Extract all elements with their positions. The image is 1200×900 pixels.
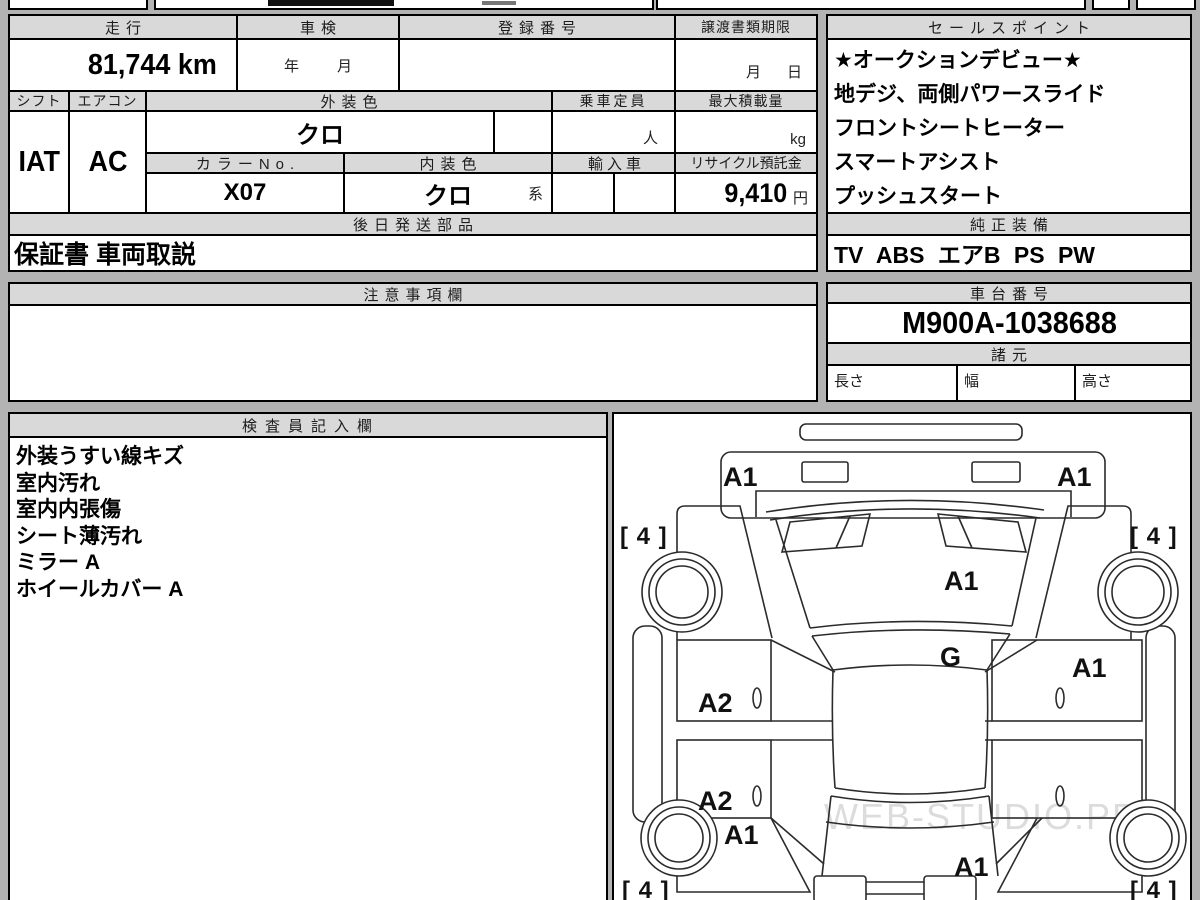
transfer-deadline-value: 月 日 (675, 39, 817, 91)
registration-value (399, 39, 675, 91)
vehicle-info-table: 走行 車検 登録番号 譲渡書類期限 81,744 km 年 月 月 日 シフト … (8, 14, 818, 272)
color-no-value: X07 (146, 173, 344, 213)
sales-point-line: フロントシートヒーター (834, 112, 1065, 146)
inspector-note-line: 室内汚れ (16, 471, 100, 498)
cropped-text-fragment (482, 1, 516, 5)
sales-point-line: プッシュスタート (834, 180, 1002, 213)
mark-front-tire-left: [ 4 ] (620, 523, 668, 550)
aircon-value: AC (69, 111, 146, 213)
notes-header: 注意事項欄 (9, 283, 817, 305)
rear-right-wheel (1110, 800, 1186, 876)
interior-color-value: クロ 系 (344, 173, 552, 213)
inspector-note-line: ミラー A (16, 550, 100, 577)
capacity-value: 人 (552, 111, 675, 153)
mark-rear-tire-left: [ 4 ] (622, 877, 670, 900)
import-car-value-cell (614, 173, 675, 213)
registration-header: 登録番号 (399, 15, 675, 39)
color-no-header: カラーNo. (146, 153, 344, 173)
mark-front-door-right: A1 (1072, 653, 1107, 683)
cropped-cell (656, 0, 1086, 10)
mark-rear-tire-right: [ 4 ] (1130, 877, 1178, 900)
car-damage-diagram: A1 A1 [ 4 ] [ 4 ] A1 G A1 A2 A2 A1 A1 [ … (614, 414, 1190, 900)
aircon-header: エアコン (69, 91, 146, 111)
mark-front-door-left: A2 (698, 688, 733, 718)
recycle-fee-value: 9,410 円 (675, 173, 817, 213)
shift-header: シフト (9, 91, 69, 111)
chassis-value: M900A-1038688 (827, 303, 1191, 343)
front-right-wheel (1098, 552, 1178, 632)
max-load-value: kg (675, 111, 817, 153)
import-car-header: 輸入車 (552, 153, 675, 173)
front-left-wheel (642, 552, 722, 632)
inspection-header: 車検 (237, 15, 399, 39)
interior-color-header: 内装色 (344, 153, 552, 173)
mark-front-tire-right: [ 4 ] (1130, 523, 1178, 550)
inspector-note-line: シート薄汚れ (16, 524, 142, 551)
capacity-header: 乗車定員 (552, 91, 675, 111)
genuine-equipment-value: TV ABS エアB PS PW (827, 235, 1191, 271)
shift-value: IAT (9, 111, 69, 213)
import-car-value-cell (552, 173, 614, 213)
specs-header: 諸元 (827, 343, 1191, 365)
sales-points-list: ★オークションデビュー★ 地デジ、両側パワースライド フロントシートヒーター ス… (827, 39, 1191, 213)
inspector-notes-panel: 検査員記入欄 外装うすい線キズ 室内汚れ 室内内張傷 シート薄汚れ ミラー A … (8, 412, 608, 900)
sales-point-line: 地デジ、両側パワースライド (834, 78, 1105, 112)
sales-points-panel: セールスポイント ★オークションデビュー★ 地デジ、両側パワースライド フロント… (826, 14, 1192, 272)
mark-rear-gate: A1 (954, 852, 989, 882)
mileage-value: 81,744 km (9, 39, 237, 91)
mark-rear-fender-left: A1 (724, 820, 759, 850)
spec-width-label: 幅 (957, 365, 1075, 401)
inspection-value: 年 月 (237, 39, 399, 91)
mileage-header: 走行 (9, 15, 237, 39)
interior-color-suffix: 系 (528, 183, 543, 204)
inspector-note-line: 外装うすい線キズ (16, 444, 184, 471)
exterior-color-value: クロ (146, 111, 494, 153)
inspector-note-line: ホイールカバー A (16, 577, 183, 604)
genuine-equipment-header: 純正装備 (827, 213, 1191, 235)
exterior-color-extra-cell (494, 111, 552, 153)
cropped-cell (1136, 0, 1196, 10)
inspector-notes-list: 外装うすい線キズ 室内汚れ 室内内張傷 シート薄汚れ ミラー A ホイールカバー… (9, 437, 607, 900)
cropped-text-fragment (268, 0, 394, 6)
spec-length-label: 長さ (827, 365, 957, 401)
inspector-header: 検査員記入欄 (9, 413, 607, 437)
mark-front-bumper-right: A1 (1057, 462, 1092, 492)
later-parts-header: 後日発送部品 (9, 213, 817, 235)
cropped-cell (154, 0, 654, 10)
chassis-specs-panel: 車台番号 M900A-1038688 諸元 長さ 幅 高さ (826, 282, 1192, 402)
spec-height-label: 高さ (1075, 365, 1191, 401)
cropped-cell (1092, 0, 1130, 10)
exterior-color-header: 外装色 (146, 91, 552, 111)
sales-point-line: スマートアシスト (834, 146, 1001, 180)
sales-points-header: セールスポイント (827, 15, 1191, 39)
inspector-note-line: 室内内張傷 (16, 497, 121, 524)
sales-point-line: ★オークションデビュー★ (834, 44, 1082, 78)
chassis-header: 車台番号 (827, 283, 1191, 303)
mark-hood: G (940, 642, 961, 672)
car-damage-diagram-panel: WEB-STUDIO.PRO (612, 412, 1192, 900)
recycle-fee-header: リサイクル預託金 (675, 153, 817, 173)
mark-windshield: A1 (944, 566, 979, 596)
mark-front-bumper-left: A1 (723, 462, 758, 492)
mark-rear-door-left: A2 (698, 786, 733, 816)
notes-panel: 注意事項欄 (8, 282, 818, 402)
notes-body (9, 305, 817, 401)
later-parts-value: 保証書 車両取説 (9, 235, 817, 271)
cropped-cell (8, 0, 148, 10)
max-load-header: 最大積載量 (675, 91, 817, 111)
transfer-deadline-header: 譲渡書類期限 (675, 15, 817, 39)
